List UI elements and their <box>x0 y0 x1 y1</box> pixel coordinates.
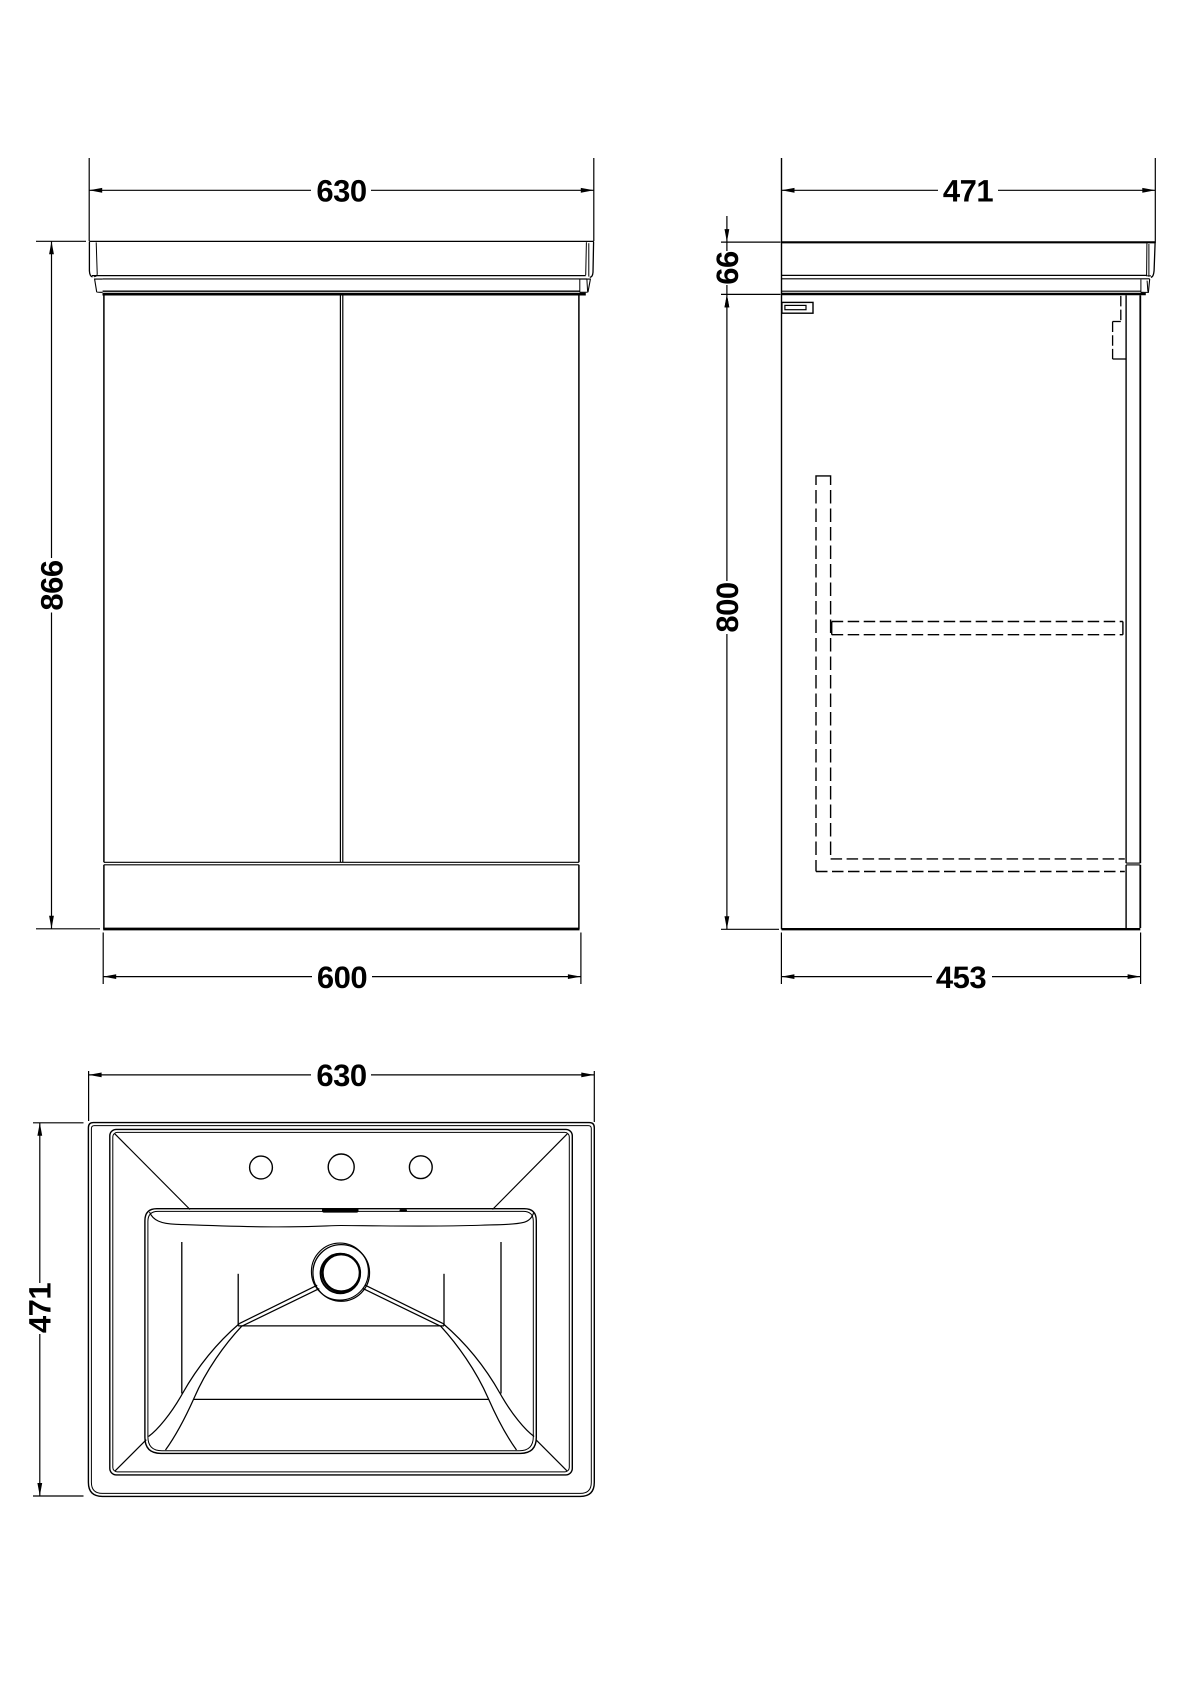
svg-text:630: 630 <box>316 173 366 208</box>
svg-text:600: 600 <box>317 960 367 995</box>
svg-text:471: 471 <box>943 173 993 208</box>
svg-text:471: 471 <box>23 1283 58 1333</box>
svg-text:800: 800 <box>710 582 745 632</box>
svg-text:66: 66 <box>710 251 745 285</box>
svg-text:453: 453 <box>936 960 986 995</box>
svg-text:630: 630 <box>316 1058 366 1093</box>
svg-text:866: 866 <box>35 560 70 610</box>
